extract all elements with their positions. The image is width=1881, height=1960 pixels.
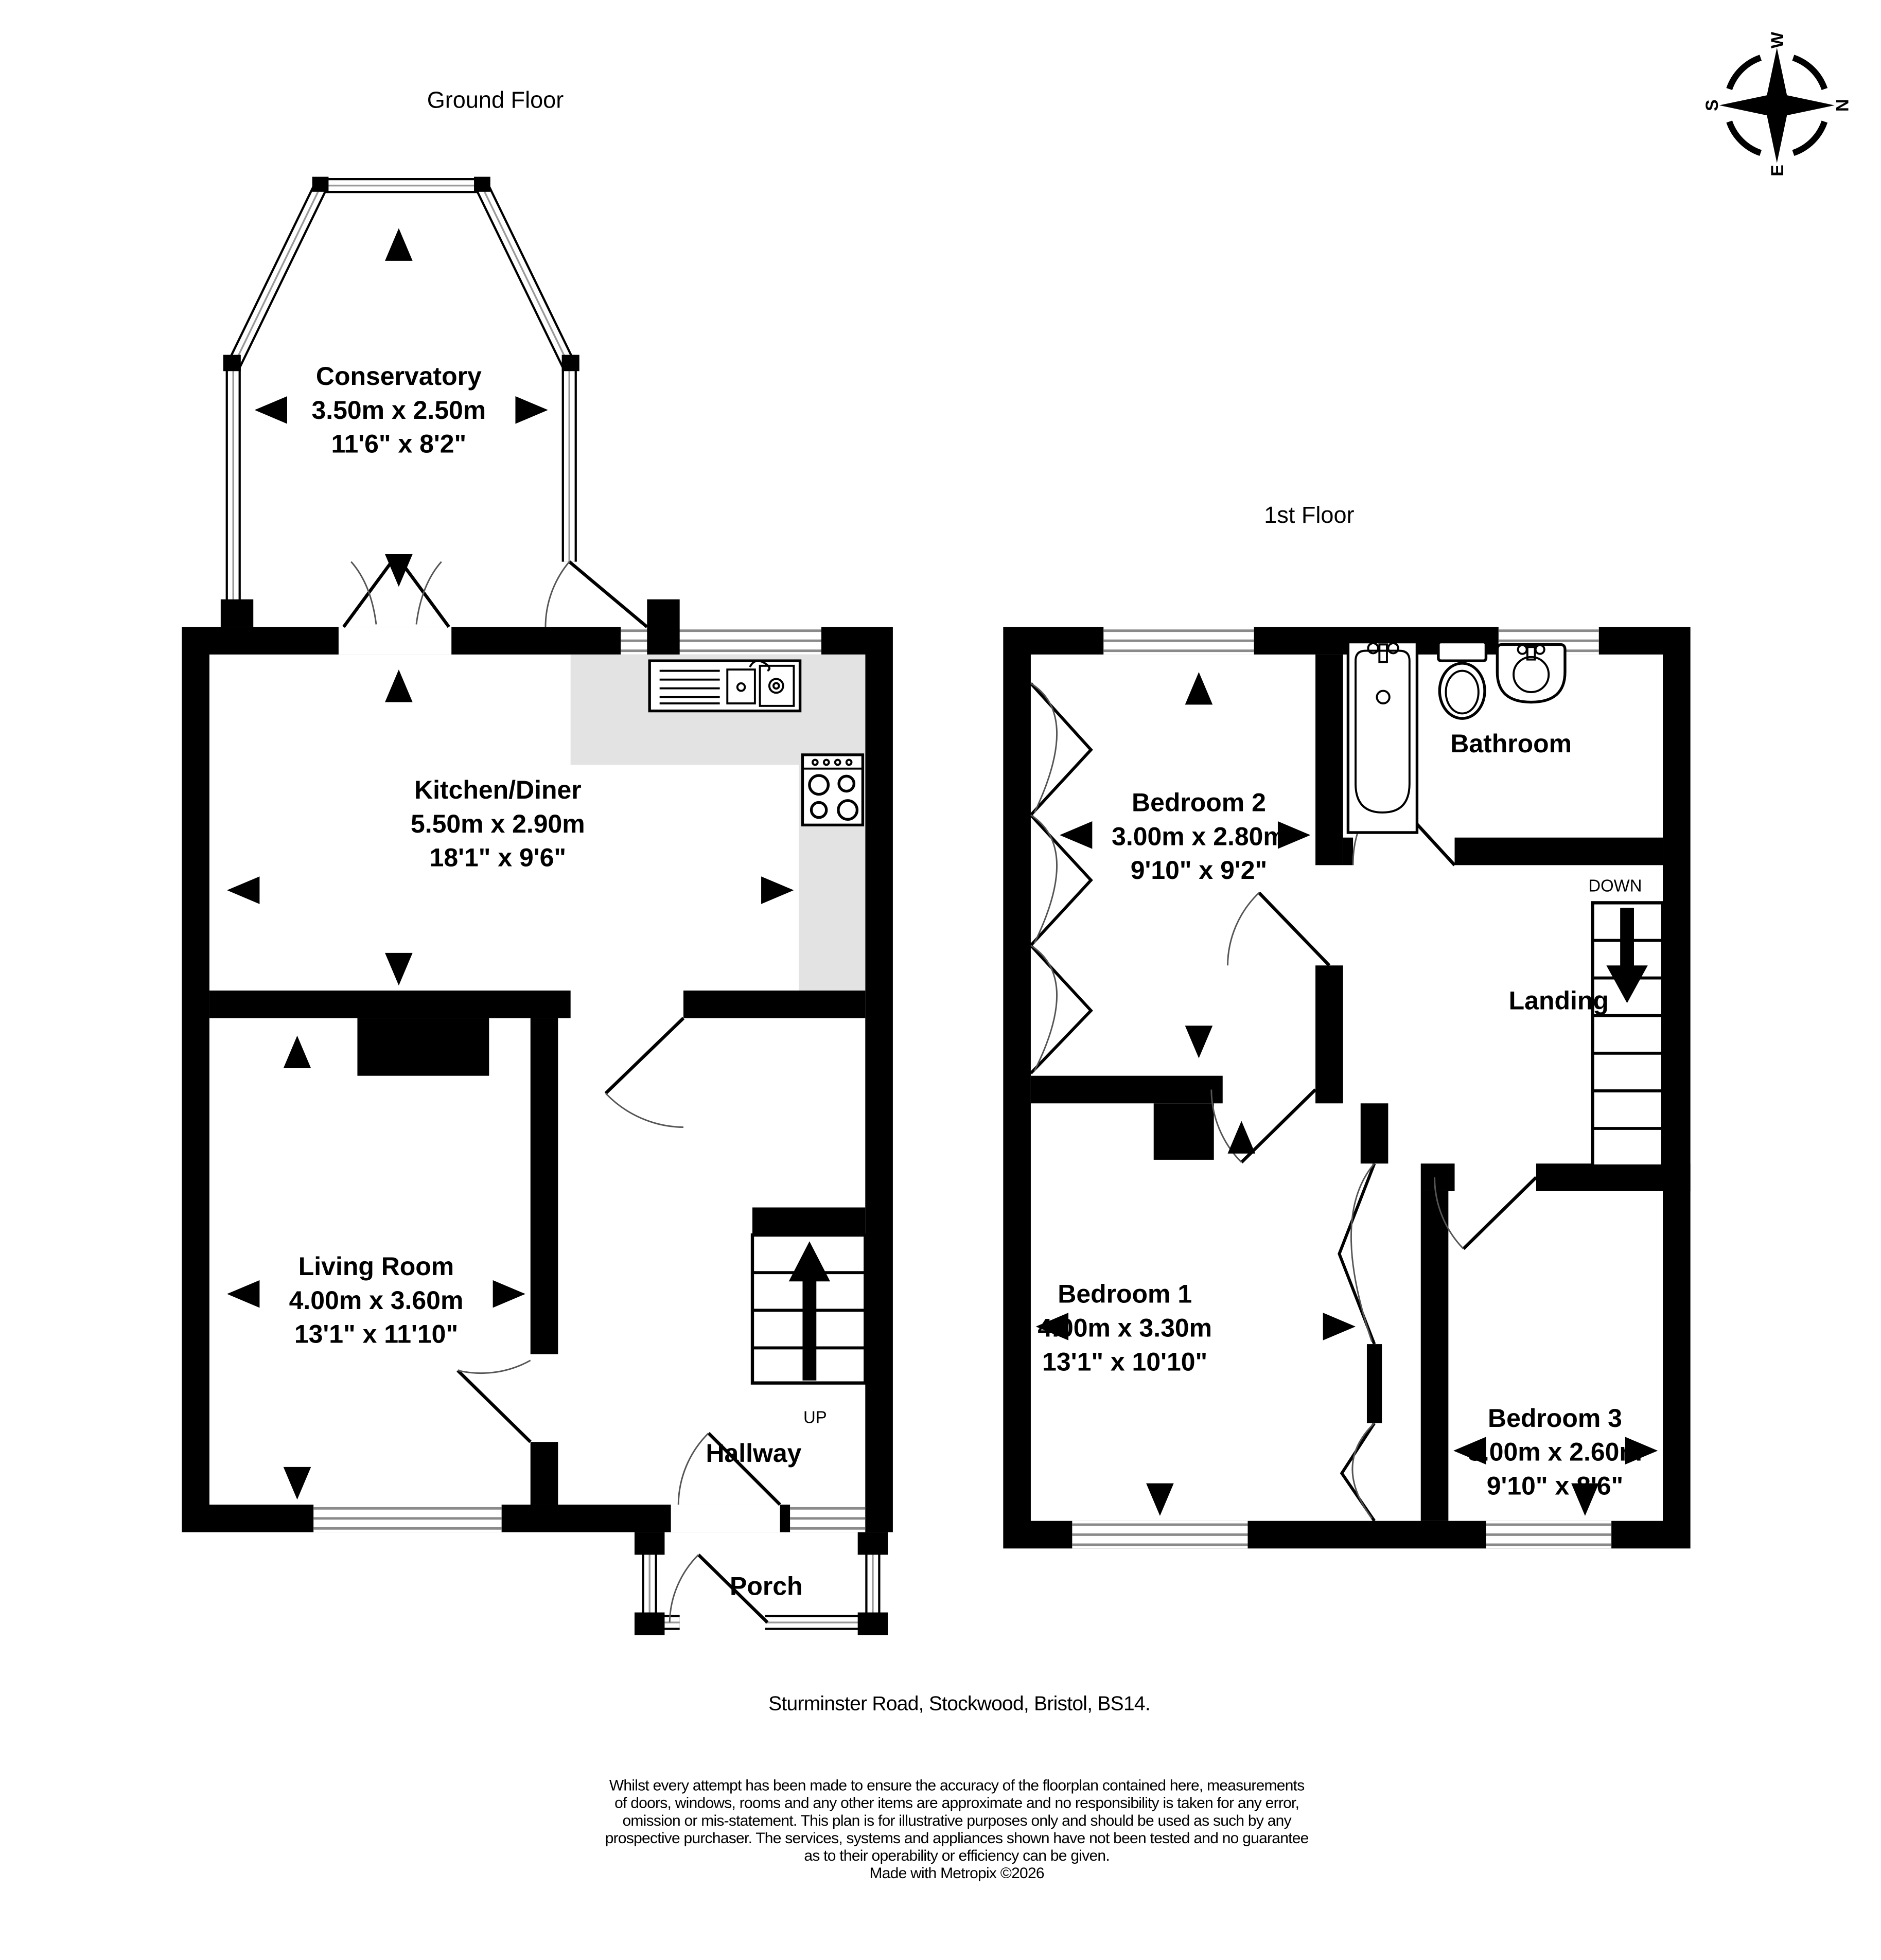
living-room-label: Living Room 4.00m x 3.60m 13'1" x 11'10" [289,1252,464,1349]
svg-text:Whilst every attempt has been: Whilst every attempt has been made to en… [609,1777,1305,1794]
basin-icon [1497,644,1565,702]
toilet-icon [1438,642,1486,719]
stairs-up-label: UP [803,1408,827,1427]
stove-icon [802,755,863,825]
svg-text:Bedroom 3: Bedroom 3 [1488,1404,1622,1433]
svg-text:5.50m x 2.90m: 5.50m x 2.90m [411,809,585,838]
bedroom1-window [1072,1521,1247,1549]
compass-north-label: N [1833,99,1853,112]
hallway-window [790,1505,865,1532]
svg-text:3.00m x 2.80m: 3.00m x 2.80m [1112,822,1286,851]
svg-text:13'1" x 11'10": 13'1" x 11'10" [294,1320,458,1349]
svg-text:Conservatory: Conservatory [316,362,482,391]
first-floor-plan: Bedroom 2 3.00m x 2.80m 9'10" x 9'2" Bat… [1003,627,1690,1548]
porch-label: Porch [730,1571,803,1600]
svg-text:9'10" x 9'2": 9'10" x 9'2" [1131,856,1268,885]
svg-text:11'6" x 8'2": 11'6" x 8'2" [331,430,466,458]
bedroom3-label: Bedroom 3 3.00m x 2.60m 9'10" x 8'6" [1468,1404,1642,1500]
living-room-window [313,1505,501,1532]
disclaimer-text: Whilst every attempt has been made to en… [605,1777,1309,1882]
kitchen-diner-label: Kitchen/Diner 5.50m x 2.90m 18'1" x 9'6" [411,775,585,872]
svg-text:4.00m x 3.60m: 4.00m x 3.60m [289,1286,464,1315]
chimney-breast-first [1154,1103,1214,1160]
hallway-label: Hallway [706,1439,801,1468]
stairs-down-label: DOWN [1588,876,1642,895]
svg-text:4.00m x 3.30m: 4.00m x 3.30m [1038,1313,1212,1342]
svg-text:3.50m x 2.50m: 3.50m x 2.50m [312,396,486,425]
property-address: Sturminster Road, Stockwood, Bristol, BS… [768,1693,1150,1715]
ground-floor-plan: Conservatory 3.50m x 2.50m 11'6" x 8'2" … [182,177,893,1635]
compass-east-label: E [1768,165,1787,176]
svg-text:13'1" x 10'10": 13'1" x 10'10" [1042,1347,1207,1376]
landing-label: Landing [1509,986,1609,1015]
metropix-credit: Made with Metropix ©2026 [869,1865,1044,1882]
floorplan-drawing: Ground Floor 1st Floor W N E S [0,0,1881,1960]
bedroom2-window [1103,627,1254,655]
svg-text:omission or mis-statement. Thi: omission or mis-statement. This plan is … [623,1812,1292,1829]
svg-text:3.00m x 2.60m: 3.00m x 2.60m [1468,1438,1642,1467]
svg-text:9'10" x 8'6": 9'10" x 8'6" [1487,1471,1624,1500]
svg-text:as to their operability or eff: as to their operability or efficiency ca… [804,1847,1110,1864]
svg-text:Kitchen/Diner: Kitchen/Diner [414,775,582,804]
svg-text:18'1" x 9'6": 18'1" x 9'6" [430,843,567,872]
stairs-up [752,1235,865,1383]
svg-text:Living Room: Living Room [298,1252,454,1281]
bathroom-label: Bathroom [1450,729,1572,758]
conservatory-label: Conservatory 3.50m x 2.50m 11'6" x 8'2" [312,362,486,458]
svg-text:of doors, windows, rooms and a: of doors, windows, rooms and any other i… [614,1795,1299,1812]
conservatory-door [546,562,647,627]
wardrobe-post [1367,1344,1382,1423]
svg-text:prospective purchaser. The ser: prospective purchaser. The services, sys… [605,1830,1309,1847]
compass-south-label: S [1702,99,1722,111]
compass-icon: W N E S [1702,31,1852,176]
floorplan-page: Ground Floor 1st Floor W N E S [0,0,1881,1960]
first-floor-title: 1st Floor [1264,502,1354,528]
svg-text:Bedroom 1: Bedroom 1 [1058,1280,1192,1309]
chimney-breast-ground [357,1018,489,1076]
bedroom2-label: Bedroom 2 3.00m x 2.80m 9'10" x 9'2" [1112,788,1286,885]
stairs-down [1593,903,1663,1166]
svg-text:Bedroom 2: Bedroom 2 [1132,788,1266,817]
sink-icon [649,661,800,711]
compass-west-label: W [1768,31,1787,48]
ground-floor-title: Ground Floor [427,87,564,113]
bath-icon [1348,642,1417,833]
bedroom1-label: Bedroom 1 4.00m x 3.30m 13'1" x 10'10" [1038,1280,1212,1376]
bedroom3-window [1486,1521,1611,1549]
